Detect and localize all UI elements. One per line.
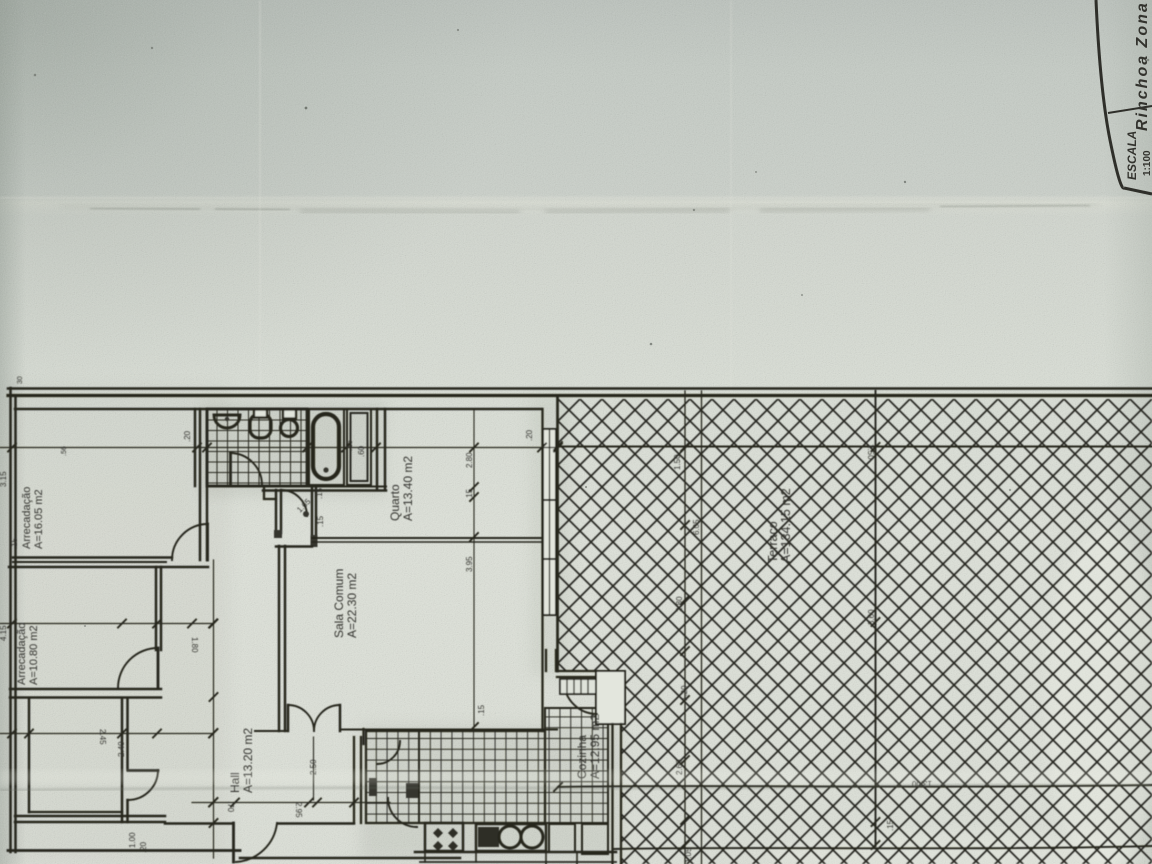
svg-text:.15: .15 xyxy=(465,488,474,500)
svg-text:.70: .70 xyxy=(226,801,235,813)
svg-text:2.95: 2.95 xyxy=(294,802,303,818)
svg-text:A=13.40 m2: A=13.40 m2 xyxy=(401,456,415,521)
svg-text:Sala Comum: Sala Comum xyxy=(332,569,346,638)
svg-text:4.15: 4.15 xyxy=(0,625,8,641)
svg-text:2.80: 2.80 xyxy=(465,452,474,468)
svg-text:Arrecadação: Arrecadação xyxy=(16,623,28,685)
svg-text:1.50: 1.50 xyxy=(866,444,875,460)
svg-text:.20: .20 xyxy=(139,841,148,853)
svg-text:1.80: 1.80 xyxy=(190,637,199,653)
svg-text:3.15: 3.15 xyxy=(0,471,8,487)
svg-text:3.60: 3.60 xyxy=(867,609,876,625)
svg-text:1.50: 1.50 xyxy=(673,454,682,470)
svg-text:ESCALA: ESCALA xyxy=(1125,131,1139,180)
svg-text:.15: .15 xyxy=(886,819,895,831)
svg-text:Terraço: Terraço xyxy=(766,521,780,563)
svg-text:A=22.30 m2: A=22.30 m2 xyxy=(345,573,359,638)
svg-text:2.40: 2.40 xyxy=(117,741,126,757)
svg-text:.20: .20 xyxy=(183,430,192,442)
svg-text:1.20: 1.20 xyxy=(680,685,689,701)
svg-text:Rinchoa Zona: Rinchoa Zona xyxy=(1134,1,1151,131)
svg-text:6.05: 6.05 xyxy=(692,519,701,535)
svg-text:A=10.80 m2: A=10.80 m2 xyxy=(28,625,40,685)
svg-text:1.05: 1.05 xyxy=(684,847,693,863)
svg-text:1.00: 1.00 xyxy=(128,832,137,848)
svg-text:2.80: 2.80 xyxy=(675,596,684,612)
svg-text:Arrecadação: Arrecadação xyxy=(21,487,33,549)
svg-text:1:100: 1:100 xyxy=(1142,150,1152,176)
svg-text:.15: .15 xyxy=(477,704,486,716)
svg-text:.20: .20 xyxy=(525,429,534,441)
svg-text:A=134.15 m2: A=134.15 m2 xyxy=(779,488,793,563)
svg-text:.15: .15 xyxy=(345,439,354,451)
svg-text:3.95: 3.95 xyxy=(465,556,474,572)
svg-text:.56: .56 xyxy=(61,446,68,456)
svg-text:A=16.05 m2: A=16.05 m2 xyxy=(33,489,45,549)
svg-text:Quarto: Quarto xyxy=(388,484,402,521)
svg-text:.60: .60 xyxy=(357,445,366,457)
svg-text:A=12.95 m2: A=12.95 m2 xyxy=(588,714,602,779)
svg-text:2.45: 2.45 xyxy=(98,729,107,745)
svg-text:.15: .15 xyxy=(316,515,325,527)
svg-text:30: 30 xyxy=(17,376,24,384)
svg-text:.15: .15 xyxy=(10,537,19,549)
svg-text:.15: .15 xyxy=(315,487,324,499)
